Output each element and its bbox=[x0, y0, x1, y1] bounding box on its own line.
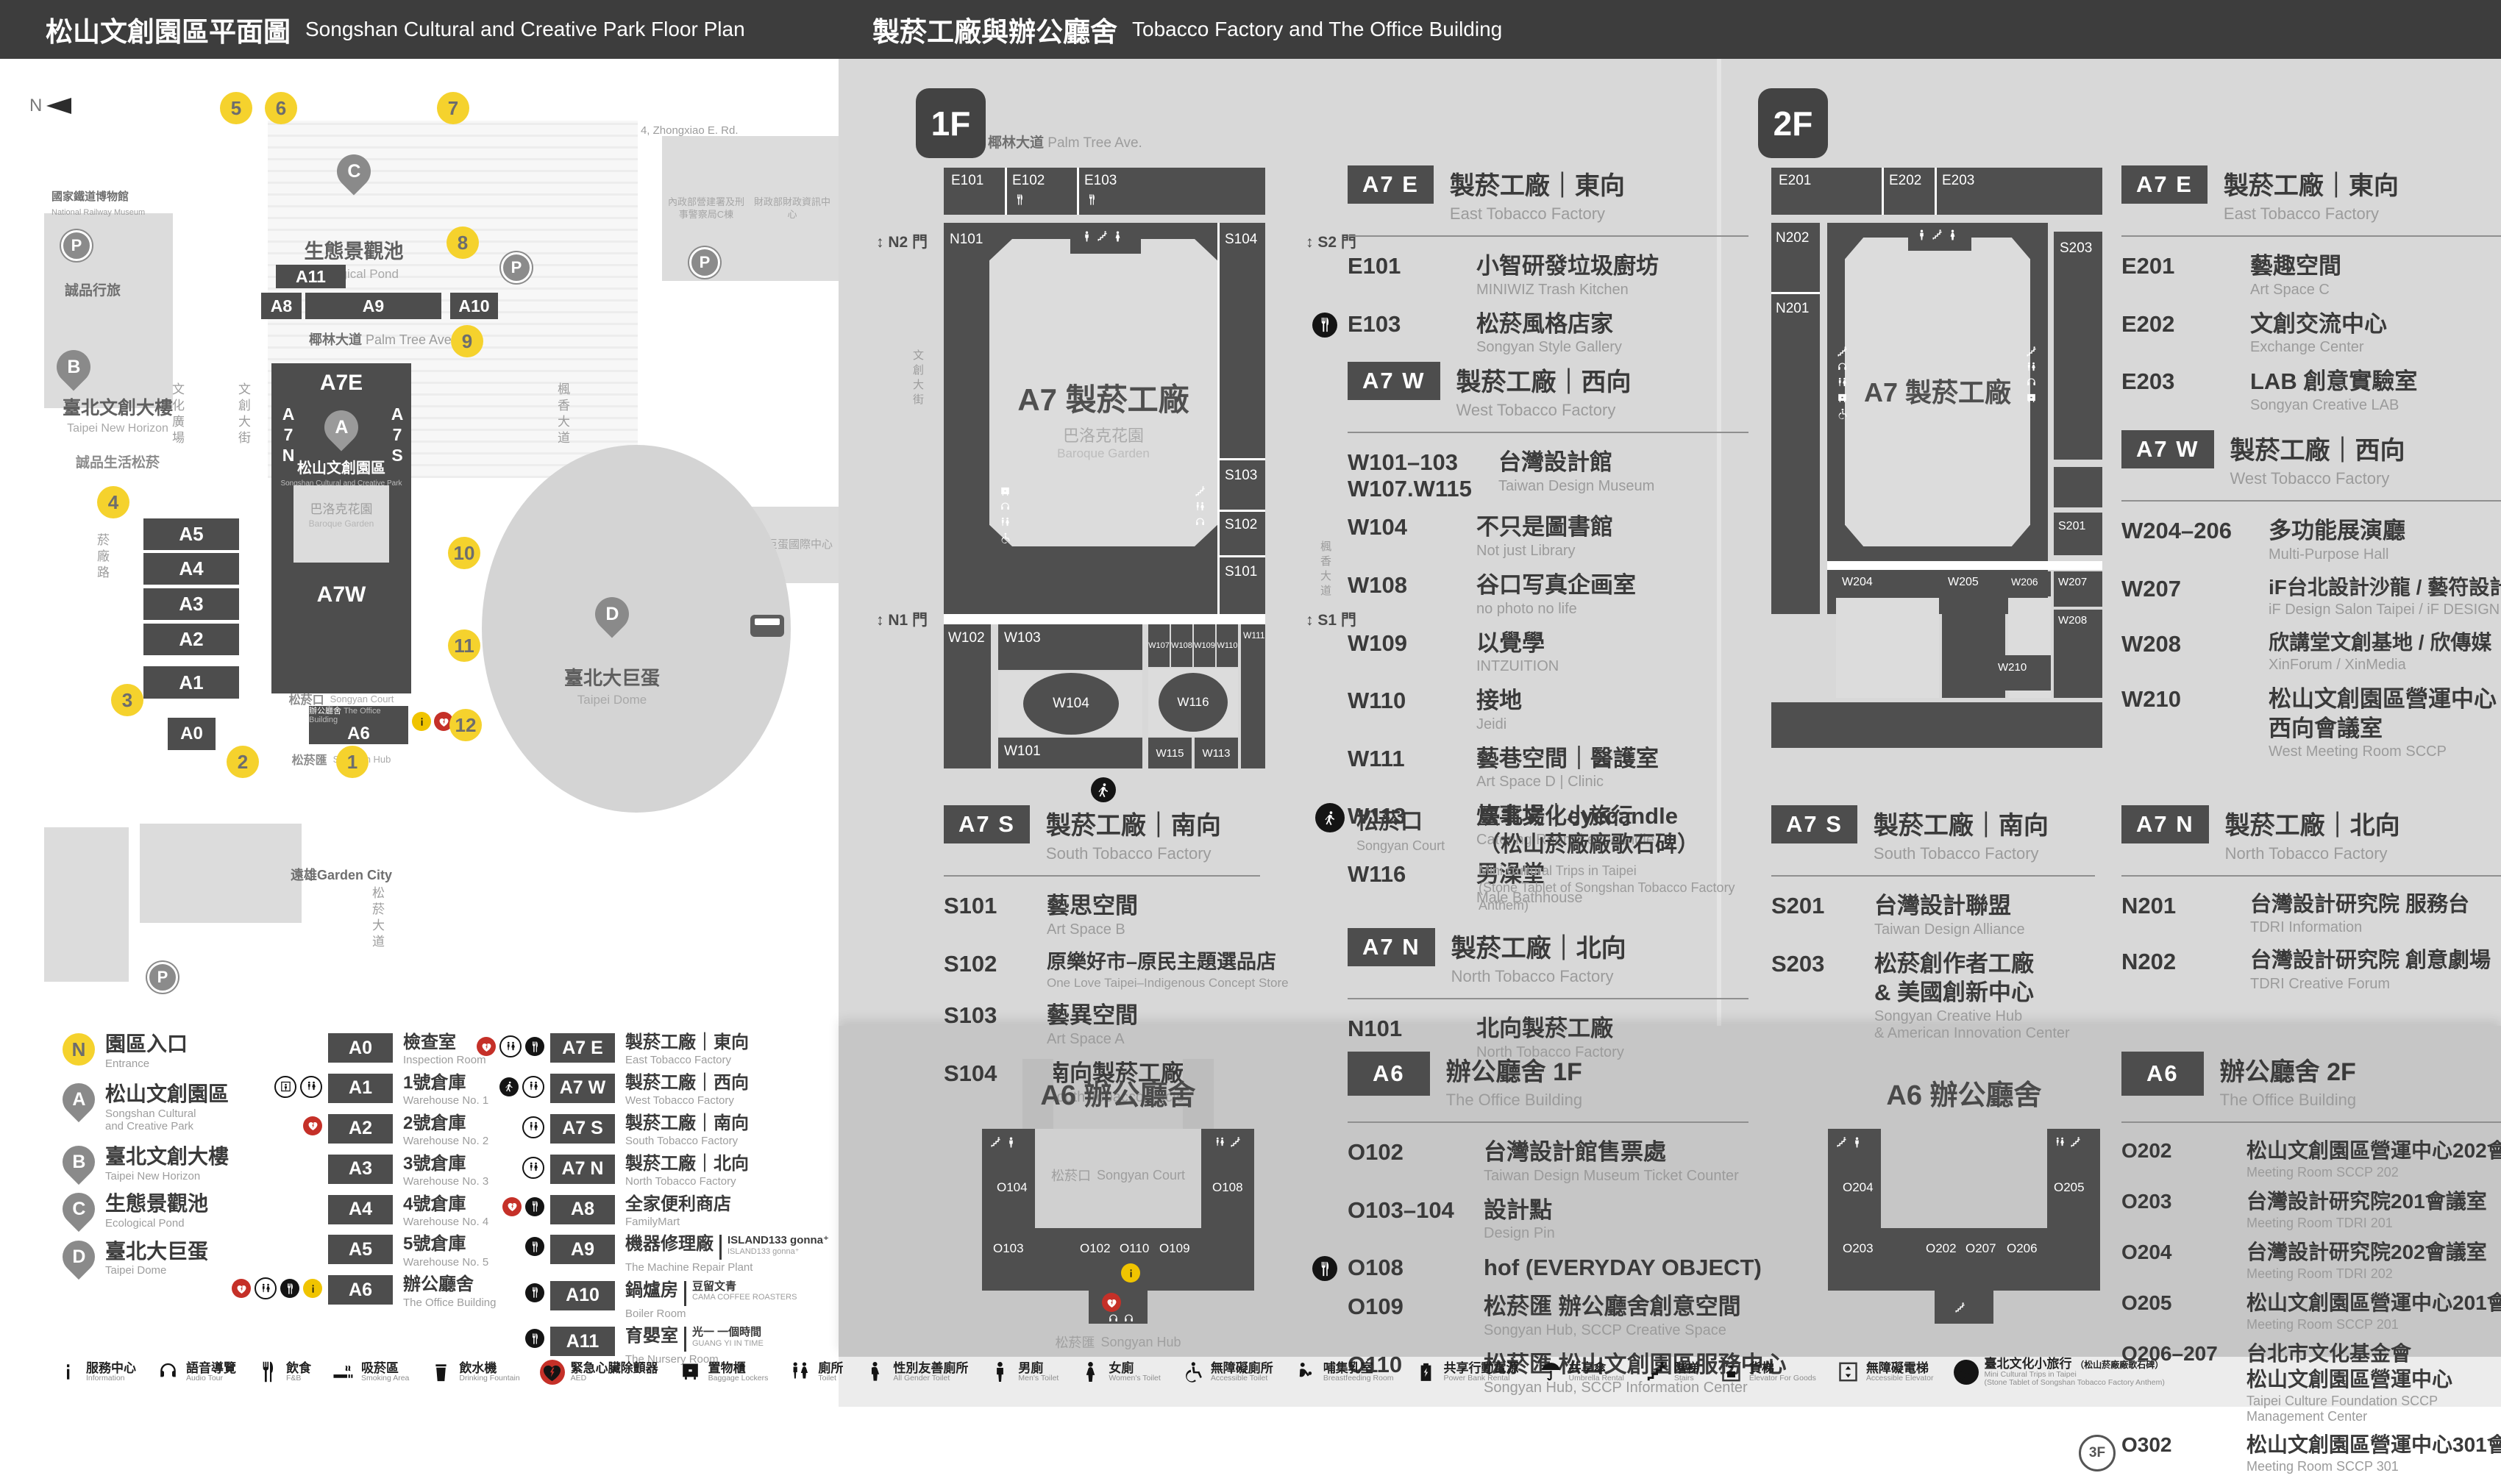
legend-entrance: N 園區入口Entrance bbox=[63, 1033, 261, 1070]
pin-b-icon: B bbox=[56, 1139, 102, 1185]
amenity-audio-tour: 語音導覽Audio Tour bbox=[156, 1360, 236, 1384]
legend-badge: A6 bbox=[328, 1275, 393, 1305]
culture-trip-icon bbox=[499, 1077, 519, 1096]
room-label: E203 bbox=[1942, 173, 1974, 189]
legend-badge: A7 S bbox=[550, 1114, 615, 1144]
toilet-icon bbox=[255, 1277, 277, 1299]
amenity-goods-elevator: 貨梯Elevator For Goods bbox=[1719, 1360, 1816, 1384]
plan-garden-zh: 巴洛克花園 bbox=[989, 423, 1217, 446]
toilet-icon bbox=[788, 1360, 812, 1384]
plan-room: W210 bbox=[1992, 655, 2051, 691]
plan-room: W101 bbox=[998, 738, 1142, 768]
room-label: S104 bbox=[1225, 232, 1257, 248]
room-row: E202文創交流中心Exchange Center bbox=[2121, 311, 2501, 357]
building-a9: A9 bbox=[305, 293, 441, 319]
building-a5: A5 bbox=[143, 518, 239, 550]
amenity-drinking-fountain: 飲水機Drinking Fountain bbox=[429, 1360, 519, 1384]
fnb-icon bbox=[256, 1360, 280, 1384]
elevator-icon bbox=[274, 1076, 296, 1098]
room-label: O108 bbox=[1212, 1180, 1243, 1195]
legend-badge: A5 bbox=[328, 1235, 393, 1264]
all-gender-icon bbox=[863, 1360, 887, 1384]
north-arrow-icon bbox=[46, 98, 71, 114]
aed-icon bbox=[477, 1037, 496, 1056]
aed-icon bbox=[303, 1116, 322, 1135]
wheelchair-icon bbox=[1181, 1360, 1205, 1384]
a7e-map-label: A7E bbox=[271, 371, 411, 396]
section-2f-a7s: A7 S 製菸工廠｜南向South Tobacco Factory S201台灣… bbox=[1771, 805, 2095, 1055]
amenity-mens-toilet: 男廁Men's Toilet bbox=[988, 1360, 1059, 1384]
plan-room: W107 bbox=[1148, 624, 1170, 667]
room-row: N202台灣設計研究院 創意劇場TDRI Creative Forum bbox=[2121, 949, 2501, 992]
room-row: S102原樂好市–原民主題選品店One Love Taipei–Indigeno… bbox=[944, 951, 1260, 991]
plan-street-palm: 椰林大道 Palm Tree Ave. bbox=[988, 132, 1142, 151]
info-icon bbox=[56, 1360, 80, 1384]
amenity-legend-strip: 服務中心Information 語音導覽Audio Tour 飲食F&B 吸菸區… bbox=[56, 1358, 2165, 1387]
room-row: W104不只是圖書館Not just Library bbox=[1348, 514, 1748, 560]
entrance-marker: 10 bbox=[448, 537, 480, 569]
pin-c-icon: C bbox=[56, 1186, 102, 1232]
legend-col2: A0檢查室Inspection Room A11號倉庫Warehouse No.… bbox=[256, 1033, 496, 1316]
locker-icon bbox=[678, 1360, 702, 1384]
toilet-icon bbox=[989, 1136, 1017, 1149]
street-maple: 楓香大道 bbox=[553, 382, 572, 447]
left-header-title: 松山文創園區平面圖 Songshan Cultural and Creative… bbox=[46, 0, 745, 59]
room-row: E201藝趣空間Art Space C bbox=[2121, 253, 2501, 299]
plan-room: W208 bbox=[2054, 610, 2102, 698]
legend-pin-b: B 臺北文創大樓Taipei New Horizon bbox=[63, 1146, 261, 1182]
room-row: N201台灣設計研究院 服務台TDRI Information bbox=[2121, 893, 2501, 936]
badge: A7 W bbox=[1348, 362, 1440, 400]
fnb-icon bbox=[525, 1283, 544, 1302]
room-row: W111藝巷空間｜醫護室Art Space D | Clinic bbox=[1348, 746, 1748, 791]
room-label: O202 bbox=[1926, 1241, 1957, 1256]
plan-garden-en: Baroque Garden bbox=[989, 446, 1217, 461]
a6-plan-title: A6 辦公廳舍 bbox=[1817, 1072, 2111, 1113]
room-label: O109 bbox=[1159, 1241, 1190, 1256]
amenity-aed: 緊急心臟除顫器AED bbox=[540, 1360, 658, 1385]
entrance-marker: 2 bbox=[227, 746, 259, 778]
mof-building: 財政部財政資訊中心 bbox=[746, 136, 839, 281]
entrance-marker: 1 bbox=[336, 746, 369, 778]
building-a11: A11 bbox=[276, 265, 346, 288]
left-title-en: Songshan Cultural and Creative Park Floo… bbox=[305, 18, 745, 41]
eslite-hotel-label: 誠品行旅 bbox=[65, 279, 121, 299]
room-label: O102 bbox=[1080, 1241, 1111, 1256]
plan-room: W111 bbox=[1241, 624, 1265, 768]
legend-badge: A0 bbox=[328, 1033, 393, 1063]
room-row: E103松菸風格店家Songyan Style Gallery bbox=[1348, 311, 1748, 357]
room-row: O202松山文創園區營運中心202會議室Meeting Room SCCP 20… bbox=[2121, 1139, 2501, 1180]
fnb-icon bbox=[525, 1237, 544, 1256]
bus-icon bbox=[750, 615, 784, 637]
legend-pin-c: C 生態景觀池Ecological Pond bbox=[63, 1193, 261, 1230]
parking-icon: P bbox=[61, 230, 92, 261]
room-label: O206 bbox=[2007, 1241, 2038, 1256]
culture-trip-icon bbox=[1091, 777, 1116, 802]
room-row: O102台灣設計館售票處Taiwan Design Museum Ticket … bbox=[1348, 1139, 1748, 1185]
entrance-marker: 8 bbox=[447, 226, 479, 259]
room-row: O203台灣設計研究院201會議室Meeting Room TDRI 201 bbox=[2121, 1190, 2501, 1231]
plan-room: W102 bbox=[944, 624, 991, 768]
amenity-umbrella: 共享傘Umbrella Rental bbox=[1539, 1360, 1624, 1384]
songyan-court-map-label: 松菸口 Songyan Court bbox=[271, 690, 411, 707]
toilet-icon bbox=[1915, 229, 1959, 241]
a6-plan-1f: A6 辦公廳舍 松菸口 Songyan Court O104 O108 O103… bbox=[971, 1059, 1265, 1338]
info-icon bbox=[412, 712, 431, 731]
fnb-icon bbox=[1312, 313, 1337, 338]
fnb-icon bbox=[525, 1037, 544, 1056]
entrance-marker: 7 bbox=[437, 92, 469, 124]
building-a8: A8 bbox=[261, 293, 302, 319]
room-row: W108谷口写真企画室no photo no life bbox=[1348, 572, 1748, 618]
right-title-en: Tobacco Factory and The Office Building bbox=[1132, 18, 1502, 41]
building-a4: A4 bbox=[143, 553, 239, 585]
page-header: 松山文創園區平面圖 Songshan Cultural and Creative… bbox=[0, 0, 2501, 59]
building-a10: A10 bbox=[450, 293, 498, 319]
culture-trip-icon bbox=[1954, 1360, 1979, 1385]
section-2f-a7w: A7 W 製菸工廠｜西向West Tobacco Factory W204–20… bbox=[2121, 430, 2501, 773]
plan-center-label: A7 製菸工廠 bbox=[989, 375, 1217, 420]
room-row: W207iF台北設計沙龍 / 藝符設計iF Design Salon Taipe… bbox=[2121, 576, 2501, 618]
room-label: E202 bbox=[1889, 173, 1921, 189]
north-label: N bbox=[29, 96, 42, 116]
legend-col3: A7 E製菸工廠｜東向East Tobacco Factory A7 W製菸工廠… bbox=[471, 1033, 829, 1373]
toilet-icon bbox=[522, 1116, 544, 1138]
toilet-icon bbox=[2054, 1136, 2082, 1149]
room-row: W210松山文創園區營運中心西向會議室West Meeting Room SCC… bbox=[2121, 686, 2501, 760]
fnb-icon bbox=[1014, 193, 1026, 206]
room-label: O103 bbox=[993, 1241, 1024, 1256]
room-label: N202 bbox=[1776, 230, 1809, 246]
legend-badge: A4 bbox=[328, 1195, 393, 1224]
stairs-icon bbox=[1954, 1302, 1966, 1314]
room-row: O103–104設計點Design Pin bbox=[1348, 1197, 1748, 1243]
building-a6-map: 辦公廳舍 The Office Building A6 bbox=[309, 706, 408, 744]
aed-icon bbox=[540, 1360, 565, 1385]
room-label: E103 bbox=[1084, 173, 1117, 189]
legend-badge: A7 E bbox=[550, 1033, 615, 1063]
toilet-icon bbox=[1081, 230, 1124, 243]
room-row: W101–103W107.W115台灣設計館Taiwan Design Muse… bbox=[1348, 449, 1748, 502]
fnb-icon bbox=[1086, 193, 1098, 206]
building-a0: A0 bbox=[168, 718, 216, 750]
cargo-elevator-icon bbox=[1719, 1360, 1743, 1384]
room-row: S101藝思空間Art Space B bbox=[944, 893, 1260, 938]
street-cultural-plaza: 文化廣場 bbox=[168, 382, 186, 447]
floor-1f-badge: 1F bbox=[916, 88, 986, 158]
audio-icon bbox=[1107, 1313, 1135, 1325]
room-label: O110 bbox=[1120, 1241, 1149, 1256]
plan-icons bbox=[2025, 346, 2038, 404]
pin-a-icon: A bbox=[56, 1077, 102, 1122]
room-row: O204台灣設計研究院202會議室Meeting Room TDRI 202 bbox=[2121, 1241, 2501, 1282]
aed-icon bbox=[1102, 1293, 1121, 1312]
building-a3: A3 bbox=[143, 588, 239, 620]
street-palm: 椰林大道 Palm Tree Ave. bbox=[309, 329, 455, 349]
taipei-dome-shape bbox=[482, 445, 791, 813]
amenity-toilet: 廁所Toilet bbox=[788, 1360, 843, 1384]
room-label: S101 bbox=[1225, 564, 1257, 580]
room-label: S102 bbox=[1225, 517, 1257, 533]
entrance-marker: 5 bbox=[220, 92, 252, 124]
amenity-lockers: 置物櫃Baggage Lockers bbox=[678, 1360, 769, 1384]
culture-trip-icon bbox=[1315, 803, 1345, 832]
room-label: O104 bbox=[997, 1180, 1028, 1195]
legend-pins: N 園區入口Entrance A 松山文創園區Songshan Cultural… bbox=[63, 1033, 261, 1284]
entrance-marker: 9 bbox=[451, 325, 483, 357]
nursing-icon bbox=[1293, 1360, 1317, 1384]
right-title-zh: 製菸工廠與辦公廳舍 bbox=[872, 10, 1117, 49]
entrance-marker: 11 bbox=[448, 629, 480, 662]
legend-badge: A7 W bbox=[550, 1074, 615, 1103]
fnb-icon bbox=[280, 1279, 299, 1298]
umbrella-icon bbox=[1539, 1360, 1563, 1384]
legend-badge: A9 bbox=[550, 1235, 615, 1264]
room-row: O109松菸匯 辦公廳舍創意空間Songyan Hub, SCCP Creati… bbox=[1348, 1294, 1748, 1339]
plan-room: W103 bbox=[998, 624, 1142, 670]
room-row: W208欣講堂文創基地 / 欣傳媒XinForum / XinMedia bbox=[2121, 631, 2501, 674]
plan-room: W115 bbox=[1148, 738, 1192, 768]
section-a6-1f: A6 辦公廳舍 1FThe Office Building O102台灣設計館售… bbox=[1348, 1052, 1748, 1409]
floor-2f-badge: 2F bbox=[1758, 88, 1828, 158]
legend-pin-d: D 臺北大巨蛋Taipei Dome bbox=[63, 1241, 261, 1277]
amenity-accessible-elevator: 無障礙電梯Accessible Elevator bbox=[1836, 1360, 1934, 1384]
toilet-icon bbox=[522, 1076, 544, 1098]
audio-icon bbox=[156, 1360, 180, 1384]
legend-pin-a: A 松山文創園區Songshan Culturaland Creative Pa… bbox=[63, 1083, 261, 1132]
stairs-icon bbox=[1644, 1360, 1668, 1384]
plan-icons bbox=[999, 485, 1011, 544]
badge: A7 E bbox=[1348, 165, 1434, 204]
amenity-information: 服務中心Information bbox=[56, 1360, 136, 1384]
room-row: O205松山文創園區營運中心201會議室Meeting Room SCCP 20… bbox=[2121, 1291, 2501, 1333]
plan-room: W207 bbox=[2054, 571, 2102, 607]
room-label: S201 bbox=[2058, 520, 2085, 533]
legend-badge: A1 bbox=[328, 1074, 393, 1103]
room-row: S201台灣設計聯盟Taiwan Design Alliance bbox=[1771, 893, 2095, 938]
plan-room: W204 bbox=[1836, 571, 1939, 596]
pin-d-icon: D bbox=[56, 1234, 102, 1280]
room-row: O108hof (EVERYDAY OBJECT) bbox=[1348, 1255, 1748, 1281]
room-label: S203 bbox=[2060, 240, 2092, 257]
section-title-zh: 製菸工廠｜東向 bbox=[1450, 165, 1625, 201]
entrance-marker: 6 bbox=[265, 92, 297, 124]
room-label: S103 bbox=[1225, 468, 1257, 484]
legend-badge: A11 bbox=[550, 1327, 615, 1356]
gate-n2: ↕ N2 門 bbox=[876, 230, 928, 252]
floor-3f-badge: 3F bbox=[2079, 1435, 2116, 1471]
parking-icon: P bbox=[501, 252, 532, 283]
plan-room: W110 bbox=[1217, 624, 1238, 667]
aed-icon bbox=[232, 1279, 251, 1298]
women-icon bbox=[1078, 1360, 1103, 1384]
gate-n1: ↕ N1 門 bbox=[876, 608, 928, 630]
room-row: 3FO302松山文創園區營運中心301會議室Meeting Room SCCP … bbox=[2121, 1433, 2501, 1474]
right-header-title: 製菸工廠與辦公廳舍 Tobacco Factory and The Office… bbox=[872, 0, 1502, 59]
park-map-label: 松山文創園區 Songshan Cultural and Creative Pa… bbox=[271, 456, 411, 488]
legend-badge: A7 N bbox=[550, 1155, 615, 1184]
amenity-womens-toilet: 女廁Women's Toilet bbox=[1078, 1360, 1160, 1384]
men-icon bbox=[988, 1360, 1012, 1384]
floor-plan-1f: 椰林大道 Palm Tree Ave. 文創大街 楓香大道 ↕ N2 門 ↕ S… bbox=[944, 158, 1298, 768]
legend-badge: A8 bbox=[550, 1195, 615, 1224]
room-row: W109以覺學INTZUITION bbox=[1348, 630, 1748, 676]
room-row: W110接地Jeidi bbox=[1348, 688, 1748, 733]
fnb-icon bbox=[525, 1197, 544, 1216]
legend-badge: A3 bbox=[328, 1155, 393, 1184]
plan-room: W113 bbox=[1195, 738, 1238, 768]
aed-icon bbox=[502, 1197, 522, 1216]
fountain-icon bbox=[429, 1360, 453, 1384]
room-label: O205 bbox=[2054, 1180, 2085, 1195]
plan-icons bbox=[1194, 485, 1206, 529]
amenity-smoking-area: 吸菸區Smoking Area bbox=[331, 1360, 409, 1384]
room-label: O207 bbox=[1965, 1241, 1996, 1256]
north-indicator: N bbox=[29, 96, 71, 116]
a6-plan-title: A6 辦公廳舍 bbox=[971, 1072, 1265, 1113]
plan-center-label: A7 製菸工廠 bbox=[1827, 371, 2048, 410]
street-songyan-blvd: 松菸大道 bbox=[368, 886, 386, 951]
amenity-power-bank: 共享行動電源Power Bank Rental bbox=[1414, 1360, 1519, 1384]
room-label: O203 bbox=[1843, 1241, 1874, 1256]
baroque-garden-label: 巴洛克花園 Baroque Garden bbox=[293, 499, 389, 529]
building-a2: A2 bbox=[143, 624, 239, 655]
toilet-icon bbox=[300, 1076, 322, 1098]
section-title-en: East Tobacco Factory bbox=[1450, 204, 1625, 224]
info-icon bbox=[303, 1279, 322, 1298]
room-label: N101 bbox=[950, 232, 983, 248]
section-2f-a7e: A7 E 製菸工廠｜東向East Tobacco Factory E201藝趣空… bbox=[2121, 165, 2501, 427]
smoking-icon bbox=[331, 1360, 355, 1384]
powerbank-icon bbox=[1414, 1360, 1438, 1384]
garden-city-block bbox=[140, 824, 302, 923]
railway-museum-label: 國家鐵道博物館National Railway Museum bbox=[51, 190, 147, 218]
stairs-icon bbox=[1835, 1136, 1863, 1149]
park-map-panel: N 忠孝東路四段553巷 Ln. 553, Sec. 4, Zhongxiao … bbox=[0, 59, 839, 1407]
amenity-all-gender-toilet: 性別友善廁所All Gender Toilet bbox=[863, 1360, 968, 1384]
section-a6-2f: A6 辦公廳舍 2FThe Office Building O202松山文創園區… bbox=[2121, 1052, 2501, 1484]
garden-city-label: 遠雄Garden City bbox=[291, 865, 392, 884]
info-icon bbox=[1121, 1263, 1140, 1283]
legend-badge: A2 bbox=[328, 1114, 393, 1144]
floor-plan-2f: E201 E202 E203 N202 N201 A7 製菸工廠 S203 S2… bbox=[1771, 158, 2117, 768]
legend-badge: A10 bbox=[550, 1281, 615, 1310]
building-a1: A1 bbox=[143, 666, 239, 699]
plan-room: W104 bbox=[1023, 673, 1119, 735]
amenity-stairs: 階梯Stairs bbox=[1644, 1360, 1699, 1384]
toilet-icon bbox=[499, 1035, 522, 1057]
room-row: S203松菸創作者工廠& 美國創新中心Songyan Creative Hub&… bbox=[1771, 951, 2095, 1042]
entrance-legend-icon: N bbox=[63, 1033, 95, 1066]
amenity-culture-trip: 臺北文化小旅行 （松山菸廠廠歌石碑）Mini Cultural Trips in… bbox=[1954, 1358, 2165, 1387]
entrance-marker: 3 bbox=[111, 684, 143, 716]
room-row: E101小智研發垃圾廚坊MINIWIZ Trash Kitchen bbox=[1348, 253, 1748, 299]
fnb-icon bbox=[525, 1329, 544, 1348]
context-block bbox=[44, 827, 129, 982]
parking-icon: P bbox=[147, 962, 178, 993]
plan-room: W108 bbox=[1171, 624, 1192, 667]
plan-room: W109 bbox=[1194, 624, 1215, 667]
accessible-elevator-icon bbox=[1836, 1360, 1860, 1384]
room-label: E201 bbox=[1779, 173, 1811, 189]
room-row: E203LAB 創意實驗室Songyan Creative LAB bbox=[2121, 368, 2501, 414]
factory-panel: 1F 椰林大道 Palm Tree Ave. 文創大街 楓香大道 ↕ N2 門 … bbox=[839, 59, 2501, 1407]
plan-room: W206 bbox=[2008, 571, 2051, 596]
entrance-marker: 4 bbox=[97, 486, 129, 518]
songyan-court-note: 松菸口 Songyan Court 臺北文化小旅行（松山菸廠廠歌石碑） Mini… bbox=[1315, 803, 1764, 914]
taipei-dome-label: 臺北大巨蛋 Taipei Dome bbox=[538, 663, 686, 707]
room-label: E102 bbox=[1012, 173, 1045, 189]
toilet-icon bbox=[522, 1157, 544, 1179]
left-title-zh: 松山文創園區平面圖 bbox=[46, 10, 291, 49]
amenity-breastfeeding: 哺集乳室Breastfeeding Room bbox=[1293, 1360, 1394, 1384]
room-row: W204–206多功能展演廳Multi-Purpose Hall bbox=[2121, 518, 2501, 563]
toilet-icon bbox=[1214, 1136, 1242, 1149]
entrance-marker: 12 bbox=[449, 709, 482, 741]
plan-street-right: 楓香大道 bbox=[1317, 541, 1333, 599]
room-row: O206–207台北市文化基金會松山文創園區營運中心Taipei Culture… bbox=[2121, 1342, 2501, 1424]
room-label: N201 bbox=[1776, 301, 1809, 317]
a6-plan-2f: A6 辦公廳舍 O204 O205 O203 O202 O207 O206 bbox=[1817, 1059, 2111, 1338]
street-creative-blvd: 文創大街 bbox=[234, 382, 252, 447]
a7w-map-label: A7W bbox=[271, 582, 411, 607]
room-label: E101 bbox=[951, 173, 983, 189]
room-label: O204 bbox=[1843, 1180, 1874, 1195]
parking-icon: P bbox=[689, 247, 720, 278]
plan-room: W116 bbox=[1159, 673, 1228, 732]
amenity-fnb: 飲食F&B bbox=[256, 1360, 311, 1384]
a6-hub-label: 松菸匯 Songyan Hub bbox=[971, 1333, 1265, 1352]
section-2f-a7n: A7 N 製菸工廠｜北向North Tobacco Factory N201台灣… bbox=[2121, 805, 2501, 1005]
a6-court-label: 松菸口 Songyan Court bbox=[1035, 1166, 1201, 1185]
amenity-accessible-toilet: 無障礙廁所Accessible Toilet bbox=[1181, 1360, 1273, 1384]
street-yanchang: 菸廠路 bbox=[93, 533, 111, 582]
section-1f-a7e: A7 E 製菸工廠｜東向East Tobacco Factory E101小智研… bbox=[1348, 165, 1748, 368]
room-row: S103藝異空間Art Space A bbox=[944, 1002, 1260, 1048]
plan-street-left: 文創大街 bbox=[910, 349, 925, 408]
plan-icons bbox=[1836, 346, 1849, 420]
